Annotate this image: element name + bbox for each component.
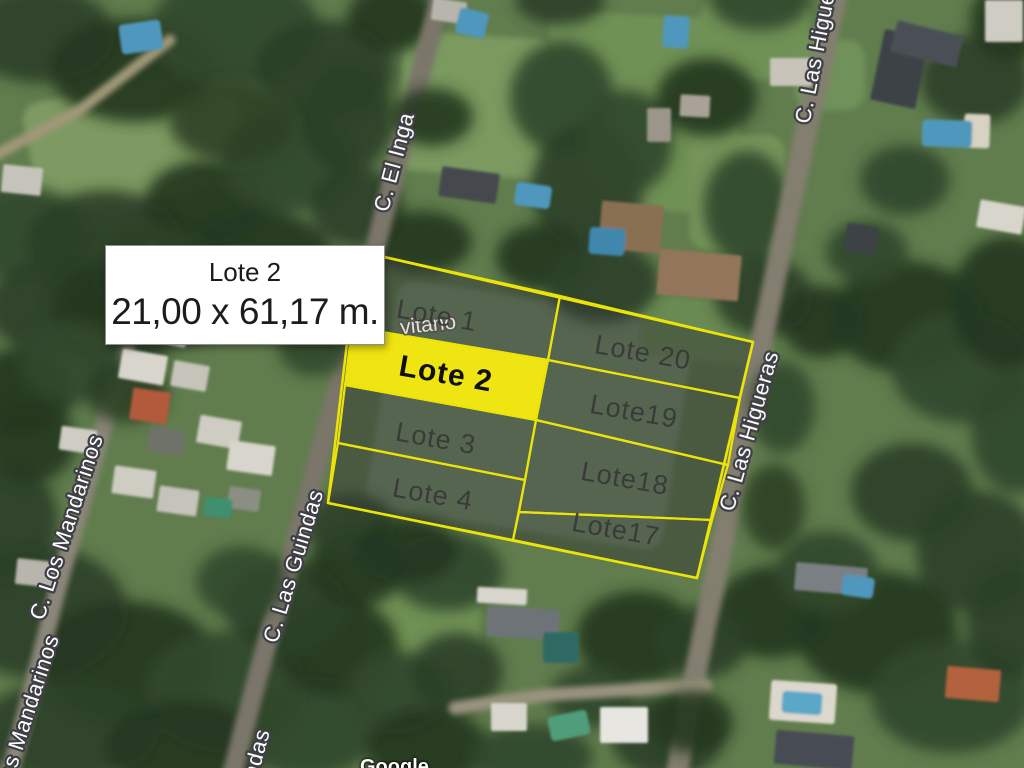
building-roof (647, 108, 671, 142)
aerial-map: C. El IngaC. Las HiguerasC. Las Higueras… (0, 0, 1024, 768)
building-roof (111, 465, 156, 499)
pool (841, 574, 876, 599)
pool (203, 497, 233, 519)
pool (781, 691, 822, 716)
tree-blob (651, 691, 733, 753)
building-roof (477, 587, 528, 606)
building-roof (129, 388, 171, 425)
tree-blob (301, 61, 393, 173)
building-roof (774, 730, 855, 768)
tree-blob (743, 464, 805, 550)
pool (662, 15, 690, 49)
lot-info-title: Lote 2 (106, 258, 384, 287)
tree-blob (860, 145, 950, 215)
pool (922, 119, 973, 148)
lot-info-dimensions: 21,00 x 61,17 m. (106, 291, 384, 334)
building-roof (985, 0, 1023, 42)
building-roof (679, 94, 710, 118)
tree-blob (170, 81, 294, 163)
pool (543, 632, 579, 663)
satellite-map-canvas: C. El IngaC. Las HiguerasC. Las Higueras… (0, 0, 1024, 768)
pool (588, 227, 626, 256)
building-roof (1, 164, 44, 196)
tree-blob (781, 286, 863, 358)
building-roof (491, 703, 527, 731)
building-roof (226, 440, 276, 476)
building-roof (843, 222, 879, 255)
building-roof (600, 707, 648, 743)
pool (118, 19, 164, 55)
building-roof (945, 666, 1002, 703)
building-roof (656, 249, 742, 302)
google-watermark: Google (360, 756, 429, 768)
building-roof (156, 485, 199, 516)
lot-info-box: Lote 2 21,00 x 61,17 m. (105, 245, 385, 345)
